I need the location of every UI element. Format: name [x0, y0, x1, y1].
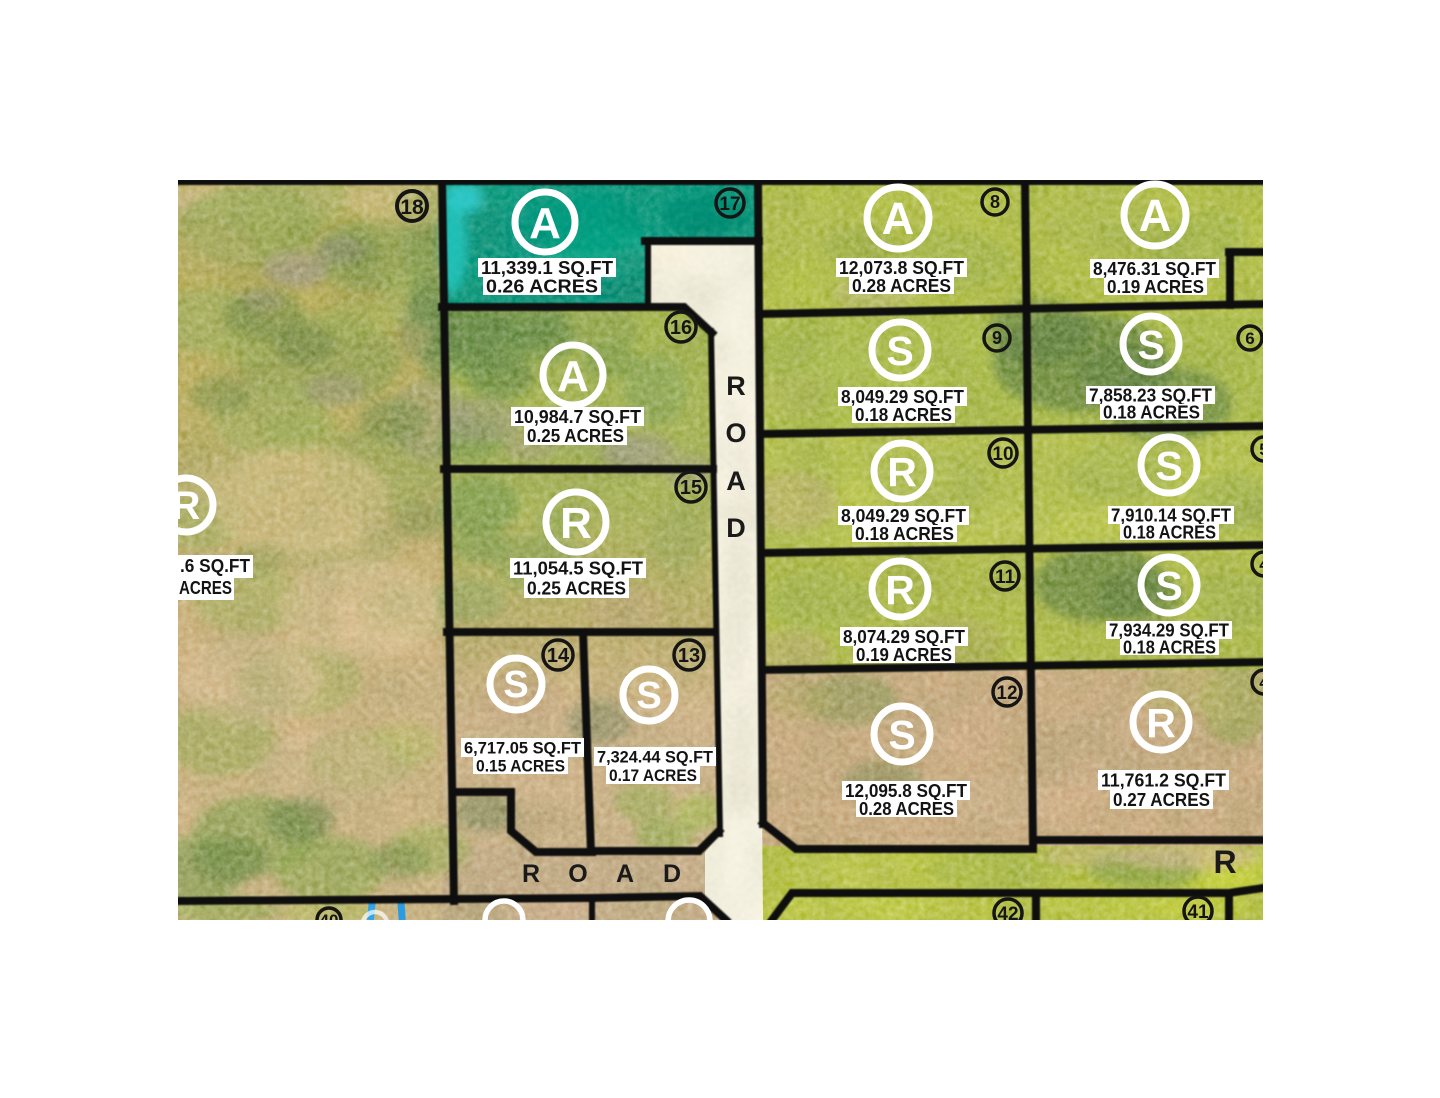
svg-text:R: R [560, 499, 592, 548]
svg-text:ACRES: ACRES [179, 578, 232, 598]
svg-text:10: 10 [992, 444, 1013, 465]
svg-text:0.18 ACRES: 0.18 ACRES [855, 524, 954, 544]
svg-text:S: S [886, 328, 913, 374]
svg-text:8,049.29 SQ.FT: 8,049.29 SQ.FT [841, 506, 966, 526]
svg-text:10,984.7 SQ.FT: 10,984.7 SQ.FT [514, 407, 641, 427]
svg-text:S: S [1137, 322, 1164, 368]
svg-text:11: 11 [995, 567, 1016, 588]
svg-text:12,073.8 SQ.FT: 12,073.8 SQ.FT [839, 258, 964, 278]
svg-text:17: 17 [719, 194, 740, 215]
svg-text:15: 15 [680, 477, 702, 499]
svg-text:O: O [568, 860, 587, 888]
svg-text:D: D [726, 513, 746, 543]
svg-text:0.15 ACRES: 0.15 ACRES [476, 757, 565, 776]
svg-text:O: O [725, 418, 746, 448]
svg-text:R: R [1213, 844, 1236, 880]
svg-text:R: R [1146, 700, 1176, 746]
svg-text:0.19 ACRES: 0.19 ACRES [856, 645, 952, 665]
svg-text:41: 41 [1187, 902, 1209, 923]
svg-text:0.25 ACRES: 0.25 ACRES [527, 579, 626, 599]
svg-text:6,717.05 SQ.FT: 6,717.05 SQ.FT [464, 739, 582, 758]
svg-text:0.18 ACRES: 0.18 ACRES [1123, 523, 1216, 543]
svg-text:0.28 ACRES: 0.28 ACRES [859, 799, 954, 819]
svg-text:D: D [663, 860, 681, 888]
svg-text:0.18 ACRES: 0.18 ACRES [1123, 638, 1216, 658]
svg-text:0.19 ACRES: 0.19 ACRES [1107, 277, 1204, 297]
svg-text:S: S [1155, 443, 1182, 489]
svg-text:S: S [1155, 563, 1182, 609]
svg-text:R: R [522, 860, 540, 888]
svg-text:R: R [885, 567, 915, 613]
svg-text:8: 8 [990, 192, 1000, 212]
svg-text:A: A [1139, 190, 1172, 241]
svg-text:0.17 ACRES: 0.17 ACRES [609, 766, 697, 785]
svg-text:0.25 ACRES: 0.25 ACRES [527, 426, 624, 446]
svg-text:S: S [888, 712, 915, 758]
svg-text:11,761.2 SQ.FT: 11,761.2 SQ.FT [1101, 771, 1226, 791]
svg-text:R: R [726, 371, 746, 401]
svg-text:.6 SQ.FT: .6 SQ.FT [180, 556, 250, 576]
svg-text:A: A [726, 466, 746, 496]
svg-text:11,054.5 SQ.FT: 11,054.5 SQ.FT [513, 559, 643, 579]
svg-text:11,339.1 SQ.FT: 11,339.1 SQ.FT [481, 258, 613, 278]
svg-text:A: A [529, 199, 561, 248]
svg-text:0.26 ACRES: 0.26 ACRES [486, 277, 598, 297]
svg-text:9: 9 [992, 328, 1002, 348]
svg-text:14: 14 [547, 645, 570, 667]
svg-text:7,324.44 SQ.FT: 7,324.44 SQ.FT [597, 748, 714, 767]
svg-text:R: R [887, 449, 917, 495]
svg-text:0.27 ACRES: 0.27 ACRES [1113, 790, 1210, 810]
svg-text:13: 13 [678, 645, 700, 667]
svg-text:0.28 ACRES: 0.28 ACRES [852, 276, 951, 296]
svg-text:0.18 ACRES: 0.18 ACRES [855, 405, 952, 425]
svg-text:16: 16 [670, 317, 692, 339]
svg-text:S: S [636, 675, 661, 717]
svg-text:8,476.31 SQ.FT: 8,476.31 SQ.FT [1093, 259, 1216, 279]
svg-text:12,095.8 SQ.FT: 12,095.8 SQ.FT [845, 781, 967, 801]
svg-text:12: 12 [996, 683, 1017, 704]
svg-text:A: A [882, 193, 915, 244]
svg-text:S: S [503, 664, 528, 706]
svg-text:A: A [616, 860, 634, 888]
svg-text:18: 18 [400, 196, 424, 219]
svg-text:0.18 ACRES: 0.18 ACRES [1103, 403, 1200, 423]
svg-text:A: A [557, 352, 589, 401]
svg-text:6: 6 [1245, 329, 1254, 348]
svg-text:8,074.29 SQ.FT: 8,074.29 SQ.FT [843, 627, 965, 647]
svg-text:8,049.29 SQ.FT: 8,049.29 SQ.FT [841, 387, 964, 407]
